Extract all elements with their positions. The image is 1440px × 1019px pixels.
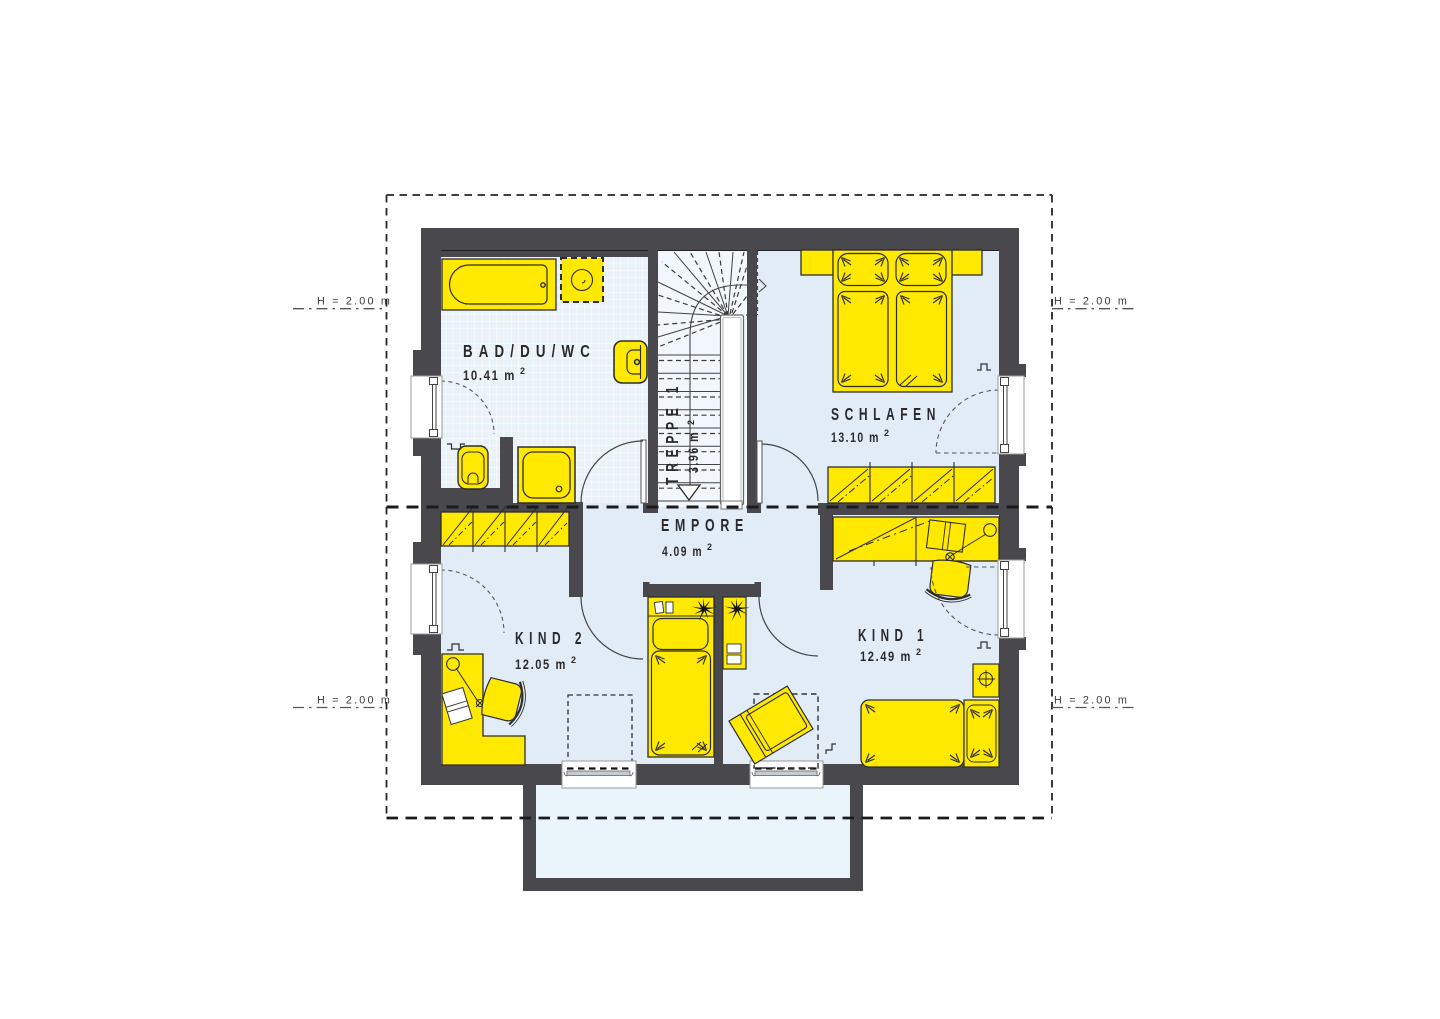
svg-text:2: 2	[686, 420, 696, 425]
svg-text:4.09 m: 4.09 m	[662, 543, 703, 559]
svg-text:12.49 m: 12.49 m	[860, 648, 912, 664]
svg-text:2: 2	[707, 542, 712, 552]
svg-text:2: 2	[916, 647, 921, 657]
svg-text:13.10 m: 13.10 m	[831, 429, 880, 445]
svg-text:KIND 1: KIND 1	[858, 625, 929, 645]
svg-text:3.96 m: 3.96 m	[685, 431, 701, 473]
svg-text:12.05 m: 12.05 m	[515, 656, 567, 672]
svg-text:2: 2	[520, 366, 525, 376]
svg-text:SCHLAFEN: SCHLAFEN	[831, 404, 941, 424]
svg-text:H = 2.00 m: H = 2.00 m	[1054, 296, 1129, 308]
svg-text:BAD/DU/WC: BAD/DU/WC	[463, 341, 596, 361]
svg-text:2: 2	[884, 428, 889, 438]
svg-text:2: 2	[571, 655, 576, 665]
svg-text:H = 2.00 m: H = 2.00 m	[317, 296, 392, 308]
svg-text:10.41 m: 10.41 m	[463, 367, 516, 383]
svg-text:EMPORE: EMPORE	[661, 515, 749, 535]
svg-text:KIND 2: KIND 2	[515, 628, 587, 648]
svg-text:H = 2.00 m: H = 2.00 m	[317, 695, 392, 707]
svg-text:TREPPE 1: TREPPE 1	[662, 381, 682, 485]
svg-text:H = 2.00 m: H = 2.00 m	[1054, 695, 1129, 707]
